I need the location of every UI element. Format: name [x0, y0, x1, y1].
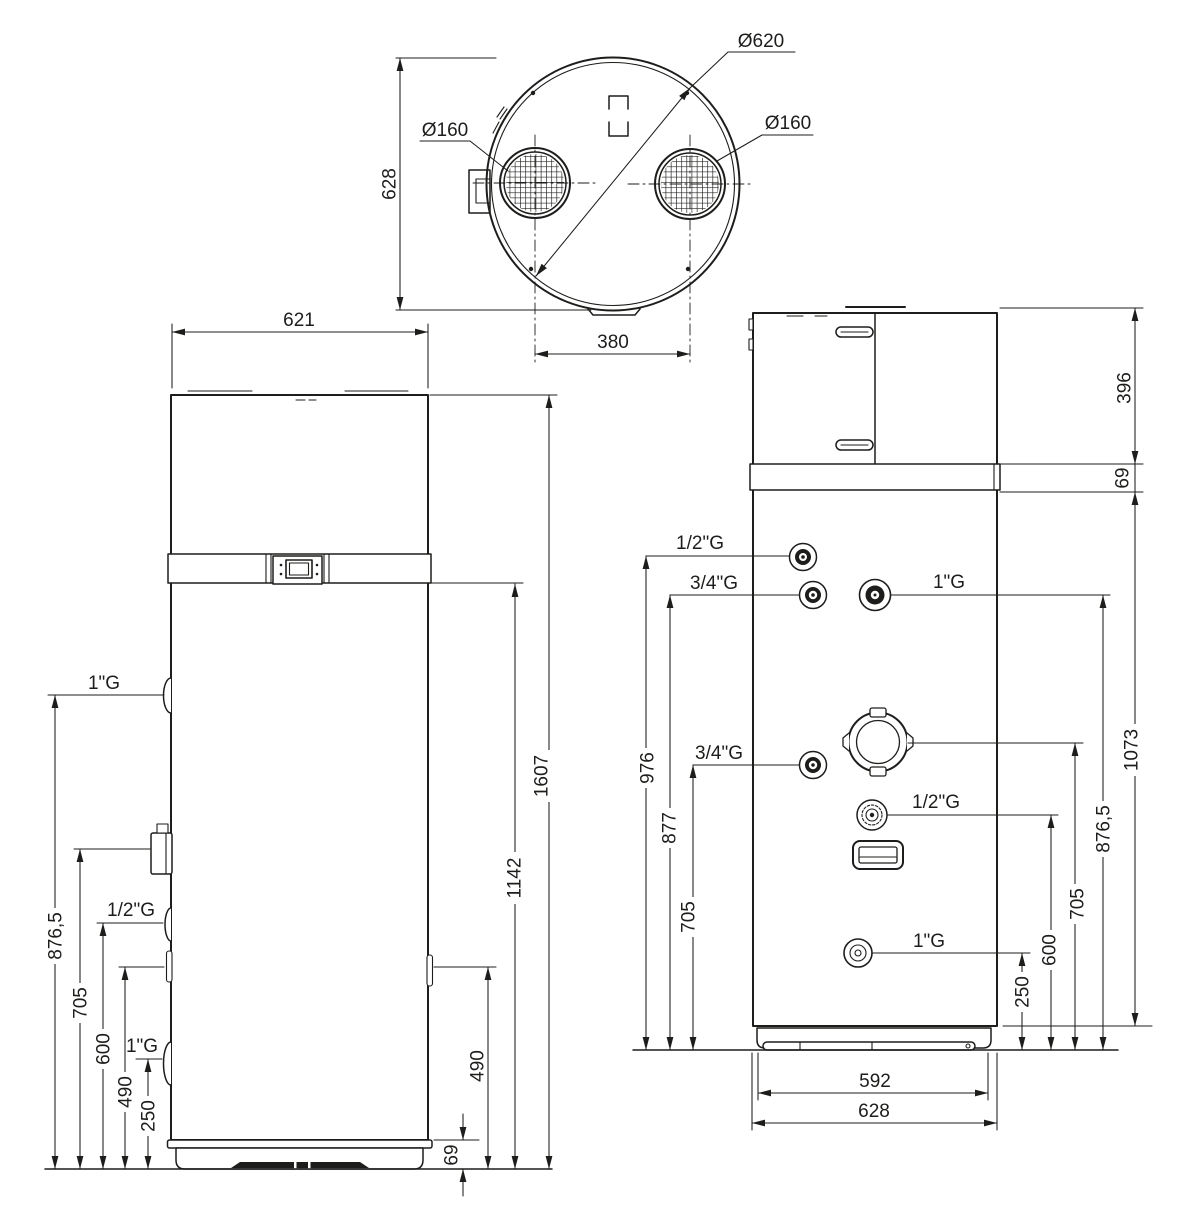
svg-text:1/2"G: 1/2"G [107, 900, 155, 921]
front-band [750, 464, 1000, 490]
svg-text:876,5: 876,5 [1094, 805, 1115, 853]
side-band [168, 554, 431, 584]
dim-label-base-width: 592 [859, 1071, 891, 1092]
dim-front-976: 976 [637, 556, 659, 1050]
dim-label-fan-left: Ø160 [422, 120, 468, 141]
svg-text:69: 69 [1113, 467, 1134, 488]
hinge-top [836, 327, 873, 337]
svg-text:490: 490 [116, 1076, 137, 1108]
svg-text:3/4"G: 3/4"G [695, 743, 743, 764]
dim-front-base-width: 592 [758, 1053, 988, 1100]
dim-shell-diameter: Ø620 [536, 31, 795, 276]
svg-text:3/4"G: 3/4"G [690, 573, 738, 594]
front-view: 1/2"G 3/4"G 1"G 3/4"G 1/2"G 1"G [633, 307, 1152, 1130]
svg-text:877: 877 [660, 812, 681, 844]
svg-text:1/2"G: 1/2"G [912, 792, 960, 813]
side-flange [151, 824, 172, 874]
dim-label-shell-diameter: Ø620 [738, 31, 784, 52]
svg-text:1/2"G: 1/2"G [676, 533, 724, 554]
dim-front-876_5: 876,5 [1093, 595, 1115, 1050]
front-port-label-34g-mid: 3/4"G [693, 743, 799, 765]
dim-front-250: 250 [1012, 953, 1034, 1050]
dim-front-705-right: 705 [1067, 743, 1089, 1050]
svg-text:250: 250 [139, 1100, 160, 1132]
dim-side-490-right: 490 [434, 967, 496, 1169]
front-port-34g-top [800, 582, 827, 609]
side-port-1g-top [164, 678, 171, 713]
side-port-label-1g-bottom: 1"G [126, 1036, 162, 1059]
front-port-1g-top [860, 580, 891, 611]
dim-label-overall-width: 628 [858, 1101, 890, 1122]
dim-front-877: 877 [659, 595, 681, 1050]
front-port-12g-mid [857, 800, 887, 830]
front-port-12g-top [790, 544, 817, 571]
side-slot-right [427, 955, 433, 986]
svg-text:1"G: 1"G [88, 673, 120, 694]
side-port-12g [165, 908, 171, 941]
dim-fan-spacing: 380 [535, 332, 690, 354]
front-body [749, 307, 997, 1026]
svg-text:396: 396 [1115, 372, 1136, 404]
front-port-label-1g-bottom: 1"G [873, 931, 1030, 953]
dim-side-1607: 1607 [430, 395, 557, 1169]
fan-grille-left [500, 148, 570, 218]
dim-side-490-left: 490 [115, 967, 164, 1169]
dim-side-600: 600 [93, 923, 115, 1169]
technical-drawing-page: Ø620 Ø160 Ø160 628 380 [0, 0, 1200, 1200]
svg-text:1607: 1607 [532, 755, 553, 797]
side-base [168, 1140, 433, 1169]
svg-text:600: 600 [94, 1033, 115, 1065]
svg-text:1073: 1073 [1122, 729, 1143, 771]
front-port-1g-bottom [844, 939, 872, 967]
handle-slot [609, 96, 628, 136]
top-view: Ø620 Ø160 Ø160 628 380 [380, 31, 814, 364]
side-body [171, 391, 428, 1140]
svg-text:976: 976 [638, 752, 659, 784]
svg-text:1142: 1142 [505, 858, 526, 899]
side-view: 621 1"G 1/2"G 1"G 876,5 705 [45, 310, 557, 1196]
svg-text:490: 490 [468, 1050, 489, 1082]
heat-pump-dimension-drawing: Ø620 Ø160 Ø160 628 380 [0, 0, 1200, 1200]
svg-text:1"G: 1"G [126, 1036, 158, 1057]
dim-side-width: 621 [172, 310, 428, 388]
dim-fan-diameter-left: Ø160 [420, 120, 508, 171]
dim-side-250: 250 [138, 1059, 160, 1169]
dim-label-top-depth: 628 [380, 168, 401, 200]
svg-text:705: 705 [679, 901, 700, 933]
dim-side-69-base: 69 [434, 1114, 479, 1196]
dim-label-fan-spacing: 380 [597, 332, 629, 353]
dim-front-705-left: 705 [678, 765, 700, 1050]
front-port-label-12g-mid: 1/2"G [887, 792, 1058, 815]
front-port-label-34g-top: 3/4"G [670, 573, 799, 595]
front-port-label-1g-top: 1"G [891, 572, 1110, 595]
hinge-bottom [836, 440, 873, 450]
dim-front-600: 600 [1039, 815, 1061, 1050]
side-port-1g-bottom [164, 1042, 171, 1085]
svg-text:1"G: 1"G [933, 572, 965, 593]
side-slot-left [167, 951, 173, 982]
control-display [273, 556, 322, 584]
dim-label-fan-right: Ø160 [765, 113, 811, 134]
svg-text:250: 250 [1013, 976, 1034, 1008]
rim-seam-marks [493, 107, 507, 135]
side-port-label-1g-top: 1"G [48, 673, 164, 695]
front-flange [843, 708, 913, 776]
dim-label-side-width: 621 [283, 310, 315, 331]
fan-grille-right [655, 149, 725, 219]
dim-side-876_5: 876,5 [45, 695, 67, 1169]
svg-text:876,5: 876,5 [46, 912, 67, 960]
svg-text:705: 705 [1068, 888, 1089, 920]
front-port-34g-mid [800, 752, 827, 779]
svg-text:600: 600 [1040, 934, 1061, 966]
front-port-label-12g-top: 1/2"G [646, 533, 789, 556]
svg-text:705: 705 [71, 987, 92, 1019]
front-service-slot [853, 841, 903, 869]
svg-text:69: 69 [442, 1144, 463, 1165]
svg-text:1"G: 1"G [913, 931, 945, 952]
side-port-label-12g: 1/2"G [97, 900, 163, 923]
front-base [757, 1028, 991, 1050]
